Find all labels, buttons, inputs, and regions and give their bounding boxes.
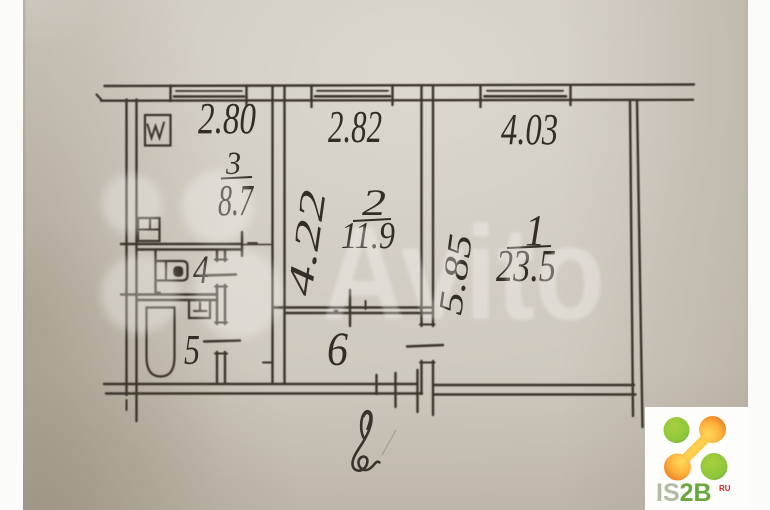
svg-text:IS2B: IS2B: [656, 479, 712, 507]
svg-text:RU: RU: [719, 484, 731, 493]
svg-text:2.80: 2.80: [198, 94, 256, 143]
svg-text:4.03: 4.03: [501, 105, 558, 154]
svg-text:5: 5: [184, 328, 200, 374]
svg-text:2.82: 2.82: [328, 101, 382, 152]
svg-text:Avito: Avito: [322, 200, 605, 348]
